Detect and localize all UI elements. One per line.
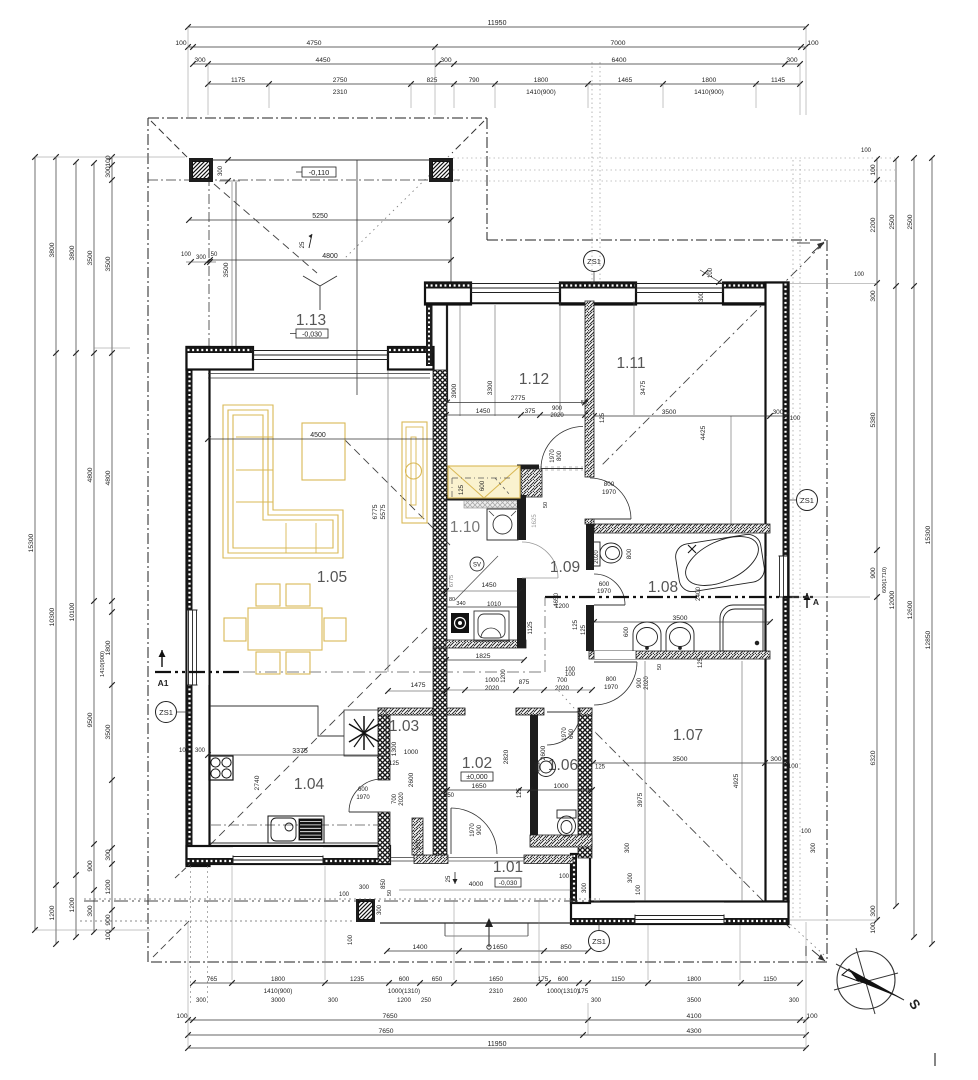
svg-text:100: 100 xyxy=(807,40,818,47)
svg-text:1000: 1000 xyxy=(404,749,419,756)
svg-text:1800: 1800 xyxy=(534,77,549,84)
svg-text:300: 300 xyxy=(628,872,634,883)
svg-text:ZS1: ZS1 xyxy=(800,496,814,505)
svg-text:300: 300 xyxy=(625,842,631,853)
svg-text:1200: 1200 xyxy=(105,879,112,894)
svg-text:ZS1: ZS1 xyxy=(159,708,173,717)
svg-text:2500: 2500 xyxy=(889,214,896,229)
svg-text:1970: 1970 xyxy=(356,795,370,801)
svg-text:1800: 1800 xyxy=(687,976,702,983)
svg-text:2600: 2600 xyxy=(513,997,528,1004)
svg-text:4800: 4800 xyxy=(87,467,94,482)
svg-text:1970: 1970 xyxy=(550,449,556,463)
svg-text:100: 100 xyxy=(790,415,801,422)
svg-text:250: 250 xyxy=(444,793,455,799)
svg-text:125: 125 xyxy=(581,624,587,635)
svg-text:100: 100 xyxy=(565,667,576,673)
svg-text:100: 100 xyxy=(176,1013,187,1020)
svg-text:300: 300 xyxy=(194,57,205,64)
svg-text:175: 175 xyxy=(538,976,549,983)
svg-text:2020: 2020 xyxy=(399,792,405,806)
svg-text:6320: 6320 xyxy=(870,750,877,765)
svg-text:1.08: 1.08 xyxy=(648,579,678,596)
svg-text:1200: 1200 xyxy=(397,997,412,1004)
svg-text:300: 300 xyxy=(582,882,588,893)
svg-text:300: 300 xyxy=(786,57,797,64)
svg-text:125: 125 xyxy=(573,619,579,630)
svg-text:1.12: 1.12 xyxy=(519,371,549,388)
svg-text:6775: 6775 xyxy=(449,575,455,587)
svg-text:1410(900): 1410(900) xyxy=(264,988,293,995)
svg-text:300: 300 xyxy=(87,905,94,916)
svg-text:300: 300 xyxy=(870,290,877,301)
svg-text:15300: 15300 xyxy=(28,533,35,552)
svg-text:800: 800 xyxy=(606,676,617,683)
svg-text:1300: 1300 xyxy=(391,741,398,756)
svg-text:300: 300 xyxy=(440,57,451,64)
svg-text:2775: 2775 xyxy=(511,395,526,402)
svg-text:1970: 1970 xyxy=(602,489,617,496)
svg-text:1.01: 1.01 xyxy=(493,859,523,876)
svg-text:300: 300 xyxy=(773,409,784,416)
svg-text:3975: 3975 xyxy=(637,792,644,807)
svg-text:1970: 1970 xyxy=(470,823,476,837)
svg-text:12600: 12600 xyxy=(907,600,914,619)
svg-text:875: 875 xyxy=(519,679,530,686)
svg-text:4300: 4300 xyxy=(687,1028,702,1035)
svg-text:800: 800 xyxy=(626,548,633,559)
svg-text:100: 100 xyxy=(175,40,186,47)
svg-text:1.05: 1.05 xyxy=(317,569,347,586)
svg-text:300: 300 xyxy=(870,905,877,916)
svg-text:1175: 1175 xyxy=(231,77,245,84)
svg-text:300: 300 xyxy=(218,165,224,176)
svg-text:1.10: 1.10 xyxy=(450,519,481,536)
svg-text:3500: 3500 xyxy=(223,262,230,277)
svg-text:1000: 1000 xyxy=(485,677,500,684)
svg-text:1150: 1150 xyxy=(611,976,625,983)
svg-text:300: 300 xyxy=(699,291,705,302)
svg-text:600: 600 xyxy=(358,787,369,793)
svg-text:1970: 1970 xyxy=(597,588,612,595)
svg-text:1200: 1200 xyxy=(69,897,76,912)
svg-text:1825: 1825 xyxy=(476,653,491,660)
svg-text:4450: 4450 xyxy=(316,57,331,64)
svg-text:1650: 1650 xyxy=(472,783,487,790)
svg-text:300: 300 xyxy=(789,998,800,1004)
svg-text:900: 900 xyxy=(637,677,643,688)
svg-text:1410(900): 1410(900) xyxy=(526,89,556,96)
svg-text:2600: 2600 xyxy=(408,772,415,787)
svg-text:100: 100 xyxy=(636,884,642,895)
svg-text:2020: 2020 xyxy=(594,550,600,564)
svg-text:300: 300 xyxy=(196,255,207,261)
svg-text:1200: 1200 xyxy=(49,905,56,920)
svg-text:3500: 3500 xyxy=(662,409,677,416)
svg-text:3500: 3500 xyxy=(105,724,112,739)
svg-text:1410(900): 1410(900) xyxy=(100,651,106,677)
svg-text:2740: 2740 xyxy=(254,775,261,790)
svg-text:25: 25 xyxy=(446,875,452,882)
svg-text:4500: 4500 xyxy=(310,432,326,439)
svg-text:100: 100 xyxy=(870,164,877,175)
svg-text:-0,110: -0,110 xyxy=(309,168,330,177)
svg-text:4800: 4800 xyxy=(105,470,112,485)
svg-text:600: 600 xyxy=(599,581,610,588)
svg-text:2020: 2020 xyxy=(485,685,500,692)
svg-text:1200: 1200 xyxy=(501,669,507,683)
svg-text:4925: 4925 xyxy=(733,773,740,788)
svg-text:5575: 5575 xyxy=(380,504,387,519)
svg-text:100: 100 xyxy=(806,1013,817,1020)
svg-text:12000: 12000 xyxy=(889,590,896,609)
svg-text:3900: 3900 xyxy=(451,383,458,398)
svg-text:125: 125 xyxy=(600,412,606,423)
svg-text:765: 765 xyxy=(207,976,218,983)
svg-text:900: 900 xyxy=(105,914,112,925)
svg-text:1200: 1200 xyxy=(555,603,570,610)
svg-text:300: 300 xyxy=(377,904,383,915)
svg-text:100: 100 xyxy=(559,874,570,880)
svg-text:100: 100 xyxy=(861,148,872,154)
svg-text:2310: 2310 xyxy=(489,988,504,995)
svg-text:4100: 4100 xyxy=(687,1013,702,1020)
svg-text:1000: 1000 xyxy=(554,783,569,790)
svg-text:4425: 4425 xyxy=(700,425,707,440)
svg-text:600: 600 xyxy=(569,728,575,739)
svg-text:850: 850 xyxy=(560,944,571,951)
svg-text:50: 50 xyxy=(581,400,587,406)
svg-text:11950: 11950 xyxy=(488,1041,507,1048)
svg-text:600: 600 xyxy=(479,480,486,491)
svg-text:1450: 1450 xyxy=(476,408,491,415)
svg-text:7650: 7650 xyxy=(383,1013,398,1020)
svg-text:900: 900 xyxy=(870,567,877,578)
svg-text:7000: 7000 xyxy=(611,40,626,47)
svg-text:1970: 1970 xyxy=(604,684,619,691)
svg-text:12850: 12850 xyxy=(925,630,932,649)
svg-text:3500: 3500 xyxy=(673,615,688,622)
svg-text:10100: 10100 xyxy=(69,602,76,621)
svg-text:1235: 1235 xyxy=(350,976,365,983)
svg-text:4000: 4000 xyxy=(469,881,484,888)
svg-text:825: 825 xyxy=(427,77,438,84)
svg-text:700: 700 xyxy=(557,677,568,684)
svg-text:125: 125 xyxy=(595,765,606,771)
svg-text:125: 125 xyxy=(389,761,400,767)
svg-text:1465: 1465 xyxy=(618,77,633,84)
svg-text:900: 900 xyxy=(87,860,94,871)
svg-text:3375: 3375 xyxy=(292,748,308,755)
svg-text:ZS1: ZS1 xyxy=(587,257,601,266)
svg-text:-0,030: -0,030 xyxy=(302,332,322,339)
svg-text:4800: 4800 xyxy=(322,253,338,260)
svg-text:3000: 3000 xyxy=(271,997,286,1004)
svg-text:900: 900 xyxy=(477,824,483,835)
svg-text:2600: 2600 xyxy=(540,745,547,760)
svg-text:50: 50 xyxy=(657,664,663,670)
svg-text:80: 80 xyxy=(449,597,455,603)
svg-text:11950: 11950 xyxy=(488,20,507,27)
svg-text:100: 100 xyxy=(870,922,877,933)
svg-text:650: 650 xyxy=(432,976,443,983)
svg-text:1410(900): 1410(900) xyxy=(694,89,724,96)
svg-text:3500: 3500 xyxy=(673,756,688,763)
svg-text:300: 300 xyxy=(770,756,781,763)
svg-text:2020: 2020 xyxy=(555,685,570,692)
svg-text:375: 375 xyxy=(525,408,536,415)
svg-text:1650: 1650 xyxy=(489,976,504,983)
svg-text:300: 300 xyxy=(416,839,422,850)
svg-text:2200: 2200 xyxy=(870,217,877,232)
svg-text:125: 125 xyxy=(698,657,704,668)
svg-text:1450: 1450 xyxy=(482,582,497,589)
svg-text:5250: 5250 xyxy=(312,213,328,220)
svg-text:300: 300 xyxy=(359,885,370,891)
svg-text:2400: 2400 xyxy=(695,587,702,602)
svg-text:5380: 5380 xyxy=(870,412,877,427)
svg-text:300: 300 xyxy=(328,998,339,1004)
svg-text:1400: 1400 xyxy=(413,944,428,951)
svg-text:1.07: 1.07 xyxy=(673,727,703,744)
svg-text:100: 100 xyxy=(339,892,350,898)
svg-text:1800: 1800 xyxy=(271,976,286,983)
svg-text:1970: 1970 xyxy=(562,727,568,741)
svg-text:1800: 1800 xyxy=(702,77,717,84)
svg-text:A: A xyxy=(813,597,819,607)
svg-text:SV: SV xyxy=(473,563,481,569)
svg-text:1.11: 1.11 xyxy=(616,355,645,372)
svg-text:850: 850 xyxy=(381,878,387,889)
svg-text:125: 125 xyxy=(459,484,465,495)
svg-text:1650: 1650 xyxy=(493,944,508,951)
svg-text:100: 100 xyxy=(854,272,865,278)
svg-text:6775: 6775 xyxy=(372,504,379,519)
svg-text:25: 25 xyxy=(300,241,306,248)
svg-text:300: 300 xyxy=(196,998,207,1004)
svg-text:300: 300 xyxy=(811,842,817,853)
svg-text:800: 800 xyxy=(604,481,615,488)
svg-text:50: 50 xyxy=(387,890,393,896)
svg-text:900: 900 xyxy=(552,406,563,412)
svg-text:±0,000: ±0,000 xyxy=(466,774,487,781)
svg-text:790: 790 xyxy=(469,77,480,84)
svg-text:1.03: 1.03 xyxy=(389,718,419,735)
svg-text:3500: 3500 xyxy=(105,256,112,271)
svg-text:3500: 3500 xyxy=(87,250,94,265)
svg-text:1000(1310): 1000(1310) xyxy=(388,988,420,995)
svg-text:100: 100 xyxy=(181,252,192,258)
svg-text:1.09: 1.09 xyxy=(550,559,580,576)
svg-text:100: 100 xyxy=(801,829,812,835)
svg-text:10300: 10300 xyxy=(49,607,56,626)
svg-text:600: 600 xyxy=(624,626,630,637)
svg-text:300: 300 xyxy=(105,849,112,860)
svg-text:2500: 2500 xyxy=(907,214,914,229)
svg-text:3500: 3500 xyxy=(687,997,702,1004)
svg-text:800: 800 xyxy=(557,450,563,461)
svg-text:2310: 2310 xyxy=(333,89,348,96)
svg-text:1150: 1150 xyxy=(763,976,777,983)
svg-text:300: 300 xyxy=(591,998,602,1004)
svg-text:1145: 1145 xyxy=(771,77,785,84)
svg-text:-0,030: -0,030 xyxy=(499,880,518,887)
svg-text:100: 100 xyxy=(179,748,190,754)
svg-text:2020: 2020 xyxy=(550,413,564,419)
svg-text:100: 100 xyxy=(105,929,112,940)
svg-text:100: 100 xyxy=(348,934,354,945)
svg-text:7650: 7650 xyxy=(379,1028,394,1035)
svg-text:1125: 1125 xyxy=(528,621,534,635)
svg-text:175: 175 xyxy=(578,988,589,995)
svg-text:3800: 3800 xyxy=(49,242,56,257)
svg-text:1475: 1475 xyxy=(411,682,426,689)
svg-text:50: 50 xyxy=(543,502,549,508)
svg-text:A1: A1 xyxy=(158,678,169,688)
svg-text:1.13: 1.13 xyxy=(296,312,326,329)
svg-text:1000(1310): 1000(1310) xyxy=(547,988,579,995)
svg-text:9500: 9500 xyxy=(87,712,94,727)
svg-text:2820: 2820 xyxy=(503,749,510,764)
svg-text:250: 250 xyxy=(421,998,432,1004)
svg-text:600: 600 xyxy=(558,976,569,983)
svg-text:ZS1: ZS1 xyxy=(592,937,606,946)
svg-text:3475: 3475 xyxy=(640,380,647,395)
svg-text:2750: 2750 xyxy=(333,77,348,84)
svg-text:3300: 3300 xyxy=(487,380,494,395)
svg-text:15300: 15300 xyxy=(925,525,932,544)
svg-text:1.02: 1.02 xyxy=(462,755,492,772)
svg-text:6400: 6400 xyxy=(612,57,627,64)
svg-text:1.04: 1.04 xyxy=(294,776,325,793)
svg-text:3800: 3800 xyxy=(69,245,76,260)
svg-text:4750: 4750 xyxy=(307,40,322,47)
svg-text:600(1710): 600(1710) xyxy=(882,567,888,593)
svg-text:340: 340 xyxy=(456,601,465,607)
svg-text:1010: 1010 xyxy=(487,601,502,608)
svg-text:300: 300 xyxy=(105,166,112,177)
svg-text:125: 125 xyxy=(517,787,523,798)
svg-text:600: 600 xyxy=(399,976,410,983)
svg-text:1625: 1625 xyxy=(532,514,538,528)
svg-text:50: 50 xyxy=(211,252,218,258)
svg-text:700: 700 xyxy=(392,793,398,804)
svg-text:300: 300 xyxy=(195,748,206,754)
